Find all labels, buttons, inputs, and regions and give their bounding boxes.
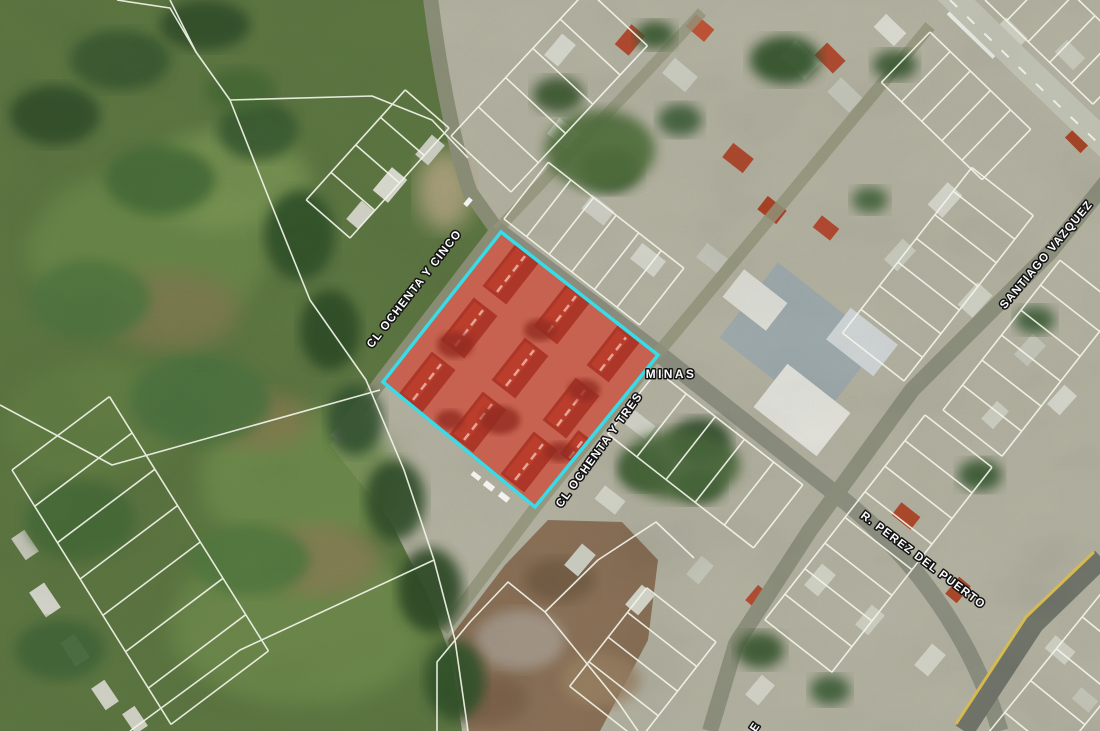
map-viewport[interactable]: CL OCHENTA Y CINCOCL OCHENTA Y TRESMINAS… bbox=[0, 0, 1100, 731]
street-label-minas: MINAS bbox=[646, 367, 697, 381]
satellite-map[interactable]: CL OCHENTA Y CINCOCL OCHENTA Y TRESMINAS… bbox=[0, 0, 1100, 731]
